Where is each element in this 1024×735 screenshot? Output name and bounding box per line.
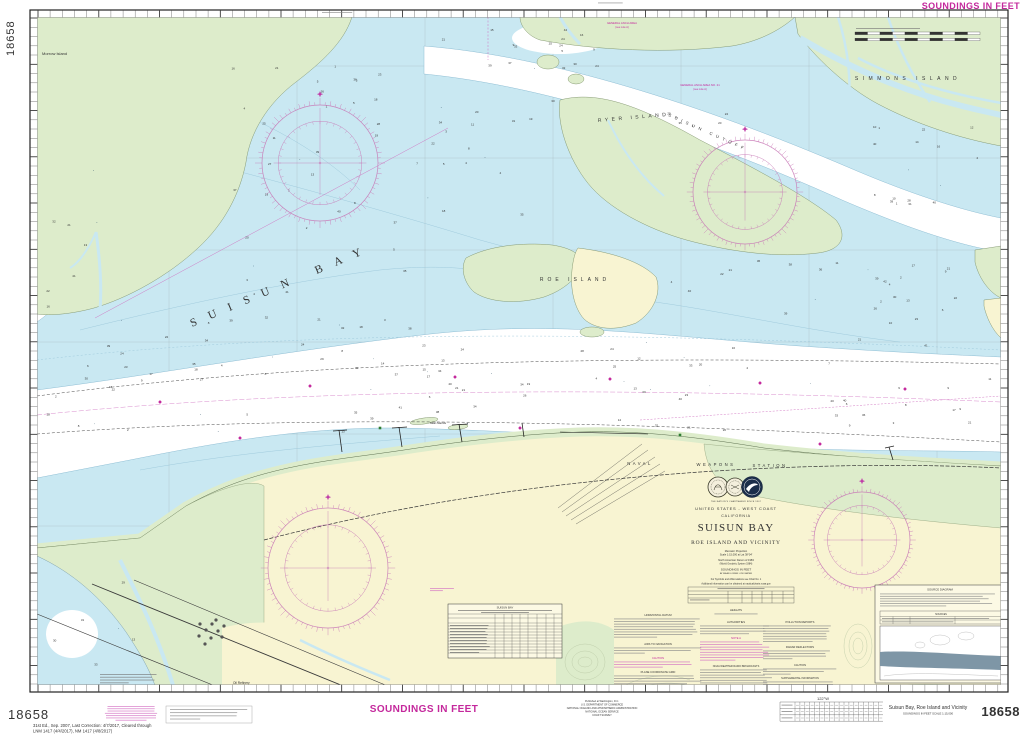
svg-text:42: 42 xyxy=(564,28,568,32)
svg-text:16: 16 xyxy=(232,67,236,71)
svg-text:23: 23 xyxy=(915,317,919,321)
note-weather-radio: NOAA WEATHER RADIO BROADCASTS xyxy=(713,665,760,668)
svg-text:32: 32 xyxy=(52,220,56,224)
label-roe-island: ROE ISLAND xyxy=(540,277,610,283)
svg-text:19: 19 xyxy=(527,382,531,386)
note-aids-nav: AIDS TO NAVIGATION xyxy=(644,642,672,646)
svg-text:37: 37 xyxy=(394,221,398,225)
label-naval: NAVAL xyxy=(627,461,653,466)
title-main: SUISUN BAY xyxy=(698,522,775,534)
svg-text:23: 23 xyxy=(422,343,426,347)
title-datum1: North American Datum of 1983 xyxy=(718,558,754,562)
svg-text:11: 11 xyxy=(471,122,474,126)
svg-text:35: 35 xyxy=(192,362,196,366)
svg-text:39: 39 xyxy=(229,318,233,322)
note-radar: RADAR REFLECTORS xyxy=(786,645,814,649)
svg-text:38: 38 xyxy=(436,410,440,414)
footer-magenta-note xyxy=(105,706,157,721)
svg-text:32: 32 xyxy=(655,423,659,427)
svg-text:18: 18 xyxy=(359,325,363,329)
svg-text:21: 21 xyxy=(275,66,279,70)
svg-text:22: 22 xyxy=(165,335,169,339)
svg-text:37: 37 xyxy=(233,188,237,192)
svg-text:36: 36 xyxy=(862,413,866,417)
source-diagram: SOURCE DIAGRAM SOURCES xyxy=(875,585,1005,683)
label-anchorage2-line1: GENERAL ANCH AREA xyxy=(607,21,637,25)
title-projection: Mercator Projection xyxy=(725,549,748,553)
svg-text:20: 20 xyxy=(245,235,249,239)
title-symbols-note: For Symbols and Abbreviations see Chart … xyxy=(711,578,762,581)
islet-1 xyxy=(537,55,559,69)
svg-text:24: 24 xyxy=(301,343,305,347)
commerce-seal-icon xyxy=(708,477,728,497)
svg-text:40: 40 xyxy=(933,200,937,204)
svg-text:21: 21 xyxy=(858,338,862,342)
svg-text:21: 21 xyxy=(687,426,691,430)
svg-text:12: 12 xyxy=(637,356,641,360)
svg-text:22: 22 xyxy=(720,272,724,276)
svg-text:21: 21 xyxy=(442,37,446,41)
svg-text:19: 19 xyxy=(529,117,533,121)
svg-text:21: 21 xyxy=(462,388,466,392)
svg-text:21: 21 xyxy=(729,268,733,272)
footer-edition-line1: 31st Ed., Sep. 2007, Last Correction: 4/… xyxy=(33,723,152,728)
svg-text:33: 33 xyxy=(835,413,839,417)
svg-text:11: 11 xyxy=(988,377,991,381)
footer-edition-line2: LNM 1417 (4/4/2017), NM 1417 (4/8/2017) xyxy=(33,729,113,734)
scale-bars-caption xyxy=(856,28,920,29)
svg-text:27: 27 xyxy=(268,162,272,166)
svg-text:18: 18 xyxy=(374,98,378,102)
svg-text:40: 40 xyxy=(873,142,877,146)
svg-text:35: 35 xyxy=(520,213,524,217)
note-caution1: CAUTION xyxy=(652,656,664,660)
title-tagline: THE NATION'S CHARTMAKER SINCE 1807 xyxy=(711,500,762,503)
svg-text:34: 34 xyxy=(438,369,442,373)
svg-text:17: 17 xyxy=(427,374,431,378)
svg-text:30: 30 xyxy=(355,366,359,370)
chart-number-left-vertical: 18658 xyxy=(5,20,17,56)
svg-text:21: 21 xyxy=(947,267,951,271)
svg-text:39: 39 xyxy=(875,276,879,280)
svg-text:34: 34 xyxy=(439,121,443,125)
svg-text:21: 21 xyxy=(455,386,459,390)
svg-text:35: 35 xyxy=(403,269,407,273)
top-margin-note xyxy=(598,3,623,4)
svg-text:40: 40 xyxy=(448,382,452,386)
chart-content: 3222411316211625263114028353723454412136… xyxy=(37,17,1005,692)
svg-text:24: 24 xyxy=(120,351,124,355)
label-anchorage2-line2: (see note A) xyxy=(615,26,629,29)
svg-text:32: 32 xyxy=(341,326,345,330)
label-anchorage1-line1: GENERAL ANCH AREA NO. 21 xyxy=(680,83,720,87)
label-morrow-island: Morrow Island xyxy=(42,51,67,56)
svg-text:41: 41 xyxy=(285,290,289,294)
svg-text:20: 20 xyxy=(718,121,722,125)
svg-text:10: 10 xyxy=(873,125,877,129)
svg-text:13: 13 xyxy=(84,243,88,247)
svg-text:39: 39 xyxy=(890,200,894,204)
title-nation: UNITED STATES - WEST COAST xyxy=(695,506,777,511)
svg-text:24: 24 xyxy=(559,44,563,48)
svg-text:21: 21 xyxy=(968,421,972,425)
svg-text:33: 33 xyxy=(514,45,518,49)
title-state: CALIFORNIA xyxy=(721,514,751,518)
svg-text:39: 39 xyxy=(316,150,320,154)
svg-text:38: 38 xyxy=(408,326,412,330)
label-weapons: WEAPONS xyxy=(697,462,736,467)
title-table-text xyxy=(718,588,765,589)
svg-text:13: 13 xyxy=(634,386,638,390)
islet-2 xyxy=(568,74,584,84)
svg-text:28: 28 xyxy=(47,413,51,417)
svg-text:34: 34 xyxy=(205,338,209,342)
svg-text:13: 13 xyxy=(132,638,136,642)
roe-marsh xyxy=(580,327,604,337)
svg-text:26: 26 xyxy=(523,394,527,398)
svg-text:24: 24 xyxy=(561,37,565,41)
svg-text:31: 31 xyxy=(81,618,85,622)
footer-lon-label: 122°W xyxy=(817,696,829,701)
noaa-seal-icon xyxy=(742,477,763,498)
svg-text:24: 24 xyxy=(610,347,614,351)
footer-title: Suisun Bay, Roe Island and Vicinity xyxy=(889,705,968,711)
svg-text:22: 22 xyxy=(431,141,435,145)
svg-text:21: 21 xyxy=(317,318,321,322)
footer-note-box xyxy=(166,706,252,723)
svg-text:13: 13 xyxy=(341,430,345,434)
svg-text:22: 22 xyxy=(954,296,958,300)
svg-text:34: 34 xyxy=(473,404,477,408)
footer-publisher-5: COAST SURVEY xyxy=(592,714,612,717)
note-heights: HEIGHTS xyxy=(730,608,742,612)
title-table-row xyxy=(690,600,710,601)
svg-text:33: 33 xyxy=(94,663,98,667)
svg-text:25: 25 xyxy=(613,364,617,368)
footer-soundings-banner: SOUNDINGS IN FEET xyxy=(370,704,478,715)
svg-text:39: 39 xyxy=(370,416,374,420)
svg-text:13: 13 xyxy=(311,173,315,177)
svg-text:17: 17 xyxy=(912,263,916,267)
svg-text:35: 35 xyxy=(354,410,358,414)
svg-text:20: 20 xyxy=(475,110,479,114)
svg-text:40: 40 xyxy=(337,210,341,214)
nautical-chart-page: SOUNDINGS IN FEET 18658 xyxy=(0,0,1024,735)
title-info-note: Additional information can be obtained a… xyxy=(701,583,771,586)
footer-subtitle: SOUNDINGS IN FEET SCALE 1:15,000 xyxy=(903,712,953,716)
svg-text:18: 18 xyxy=(442,209,446,213)
corner-deep xyxy=(46,610,98,658)
svg-text:26: 26 xyxy=(321,89,325,93)
note-authorities: AUTHORITIES xyxy=(727,620,745,624)
svg-text:39: 39 xyxy=(784,311,788,315)
svg-text:30: 30 xyxy=(53,638,57,642)
label-seal-islands: Seal Islands xyxy=(430,421,447,425)
svg-text:21: 21 xyxy=(67,223,71,227)
svg-text:16: 16 xyxy=(937,145,941,149)
svg-text:24: 24 xyxy=(595,64,599,68)
svg-text:30: 30 xyxy=(551,99,555,103)
svg-text:23: 23 xyxy=(685,393,689,397)
footer-chart-number-left: 18658 xyxy=(8,707,49,722)
svg-text:16: 16 xyxy=(580,33,584,37)
svg-text:34: 34 xyxy=(520,383,524,387)
svg-text:31: 31 xyxy=(908,202,912,206)
svg-text:18: 18 xyxy=(194,368,198,372)
svg-text:38: 38 xyxy=(789,262,793,266)
source-diagram-title: SOURCE DIAGRAM xyxy=(927,588,953,592)
svg-text:42: 42 xyxy=(883,280,887,284)
svg-text:13: 13 xyxy=(906,298,910,302)
svg-text:27: 27 xyxy=(200,377,204,381)
svg-text:30: 30 xyxy=(893,295,897,299)
svg-text:22: 22 xyxy=(725,112,729,116)
chart-svg: SOUNDINGS IN FEET 18658 xyxy=(0,0,1024,735)
svg-text:31: 31 xyxy=(512,119,516,123)
label-simmons-island: SIMMONS ISLAND xyxy=(855,76,961,82)
svg-text:11: 11 xyxy=(835,261,838,265)
source-map xyxy=(880,626,1002,680)
svg-text:37: 37 xyxy=(508,61,512,65)
table-title: SUISUN BAY xyxy=(497,606,514,610)
border-note xyxy=(322,12,352,13)
svg-text:14: 14 xyxy=(618,418,622,422)
svg-text:25: 25 xyxy=(262,122,266,126)
svg-text:11: 11 xyxy=(273,136,276,140)
title-scale: Scale 1:15,000 at Lat 38°04' xyxy=(720,553,753,557)
svg-text:20: 20 xyxy=(699,363,703,367)
svg-text:32: 32 xyxy=(265,316,269,320)
title-sub: ROE ISLAND AND VICINITY xyxy=(691,540,781,546)
note-caution2: CAUTION xyxy=(794,663,806,667)
svg-text:14: 14 xyxy=(915,140,919,144)
svg-text:15: 15 xyxy=(423,367,427,371)
svg-text:39: 39 xyxy=(488,64,492,68)
title-soundings2: AT MEAN LOWER LOW WATER xyxy=(720,572,752,575)
svg-text:17: 17 xyxy=(149,372,153,376)
svg-text:26: 26 xyxy=(874,306,878,310)
note-horizontal-datum: HORIZONTAL DATUM xyxy=(644,613,672,617)
label-anchorage1-line2: (see note A) xyxy=(693,88,707,91)
svg-text:24: 24 xyxy=(461,348,465,352)
svg-text:22: 22 xyxy=(46,289,50,293)
svg-text:23: 23 xyxy=(378,72,382,76)
svg-text:41: 41 xyxy=(399,405,403,409)
svg-text:41: 41 xyxy=(924,344,928,348)
svg-text:16: 16 xyxy=(732,346,736,350)
svg-text:29: 29 xyxy=(320,357,324,361)
note-pollution: POLLUTION REPORTS xyxy=(786,620,815,624)
svg-text:15: 15 xyxy=(490,28,494,32)
footer-chart-number-right: 18658 xyxy=(981,704,1020,719)
svg-text:28: 28 xyxy=(377,122,381,126)
svg-text:26: 26 xyxy=(723,428,727,432)
label-oil-refinery: Oil Refinery xyxy=(233,681,250,685)
svg-text:30: 30 xyxy=(642,390,646,394)
note-note-a: NOTE A xyxy=(731,636,741,640)
svg-text:29: 29 xyxy=(122,581,126,585)
svg-text:39: 39 xyxy=(107,344,111,348)
svg-text:23: 23 xyxy=(124,365,128,369)
svg-text:13: 13 xyxy=(441,359,445,363)
svg-text:32: 32 xyxy=(562,66,566,70)
svg-text:30: 30 xyxy=(85,377,89,381)
svg-text:16: 16 xyxy=(47,305,51,309)
svg-text:37: 37 xyxy=(395,373,399,377)
svg-text:10: 10 xyxy=(889,321,893,325)
mid-marsh xyxy=(556,621,614,692)
title-datum2: (World Geodetic System 1984) xyxy=(720,563,753,566)
svg-text:30: 30 xyxy=(573,62,577,66)
svg-text:20: 20 xyxy=(831,399,835,403)
svg-text:36: 36 xyxy=(819,267,823,271)
svg-text:12: 12 xyxy=(970,126,974,130)
note-supplemental: SUPPLEMENTAL INFORMATION xyxy=(781,677,819,680)
svg-text:17: 17 xyxy=(952,408,956,412)
svg-text:14: 14 xyxy=(381,361,385,365)
note-plane-grid: PLANE COORDINATE GRID xyxy=(641,670,676,674)
svg-text:36: 36 xyxy=(757,259,761,263)
svg-text:22: 22 xyxy=(922,127,926,131)
label-station: STATION xyxy=(752,463,787,468)
svg-text:41: 41 xyxy=(72,274,76,278)
svg-text:33: 33 xyxy=(689,364,693,368)
title-soundings1: SOUNDINGS IN FEET xyxy=(721,568,752,572)
svg-text:19: 19 xyxy=(375,133,379,137)
footer: 18658 31st Ed., Sep. 2007, Last Correcti… xyxy=(8,696,1020,734)
svg-text:40: 40 xyxy=(688,289,692,293)
svg-text:25: 25 xyxy=(549,41,553,45)
svg-text:28: 28 xyxy=(581,349,585,353)
source-diagram-legend: SOURCES xyxy=(935,613,947,616)
svg-text:28: 28 xyxy=(907,198,911,202)
correction-grid xyxy=(780,702,883,721)
svg-text:22: 22 xyxy=(112,388,116,392)
svg-text:40: 40 xyxy=(679,397,683,401)
